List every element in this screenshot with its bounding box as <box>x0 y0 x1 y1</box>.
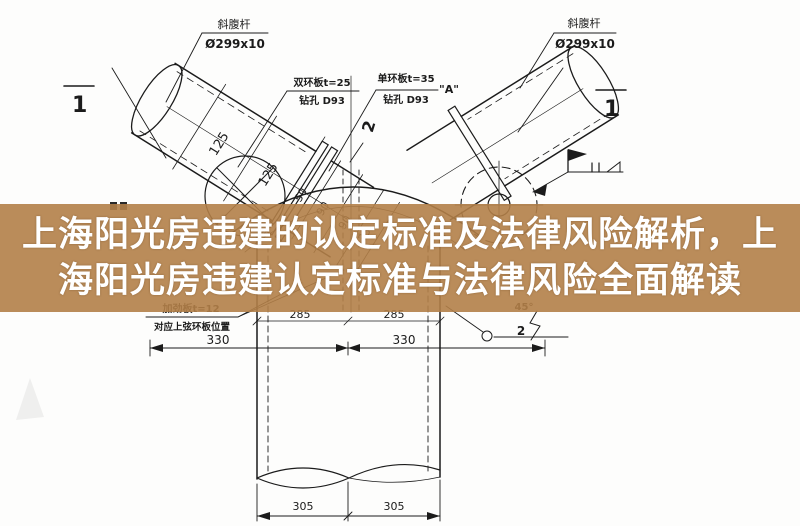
dim-305-right: 305 <box>384 500 405 513</box>
left-pipe-spec-label: Ø299x10 <box>205 37 265 51</box>
dim-305-left: 305 <box>293 500 314 513</box>
section-1-label: 1 <box>72 93 87 118</box>
double-ring-label-line1: 双环板t=25 <box>293 76 350 89</box>
field-weld-flag-icon <box>568 149 587 161</box>
title-line-1: 上海阳光房违建的认定标准及法律风险解析，上 <box>0 214 800 256</box>
right-diagonal-pipe <box>401 29 634 230</box>
stiffener-label-line2: 对应上弦环板位置 <box>154 321 231 333</box>
single-ring-label-line1: 单环板t=35 <box>377 72 434 85</box>
blog-header-image: 1 1 <box>0 0 800 526</box>
dim-330-left: 330 <box>207 333 230 347</box>
dim-row-330: 330 330 <box>150 330 545 356</box>
single-ring-label-line2: 钻孔 D93 <box>383 93 429 106</box>
section-2-label: 2 <box>358 118 379 134</box>
watermark-mark <box>16 378 44 420</box>
right-pipe-spec-label: Ø299x10 <box>555 37 615 51</box>
fillet-weld-icon <box>607 162 620 172</box>
dim-330-right: 330 <box>393 333 416 347</box>
callout-double-ring-plate: 双环板t=25 钻孔 D93 <box>238 76 359 167</box>
detail-a-label: "A" <box>439 83 459 96</box>
right-pipe-name-label: 斜腹杆 <box>568 16 601 30</box>
left-pipe-name-label: 斜腹杆 <box>218 17 251 31</box>
section-2-label: 2 <box>517 324 525 338</box>
title-banner: 上海阳光房违建的认定标准及法律风险解析，上 海阳光房违建认定标准与法律风险全面解… <box>0 204 800 312</box>
title-line-2: 海阳光房违建认定标准与法律风险全面解读 <box>0 260 800 302</box>
weld-flag-symbol <box>533 149 623 196</box>
double-ring-label-line2: 钻孔 D93 <box>299 94 345 107</box>
section-mark-1-right: 1 <box>518 68 626 132</box>
